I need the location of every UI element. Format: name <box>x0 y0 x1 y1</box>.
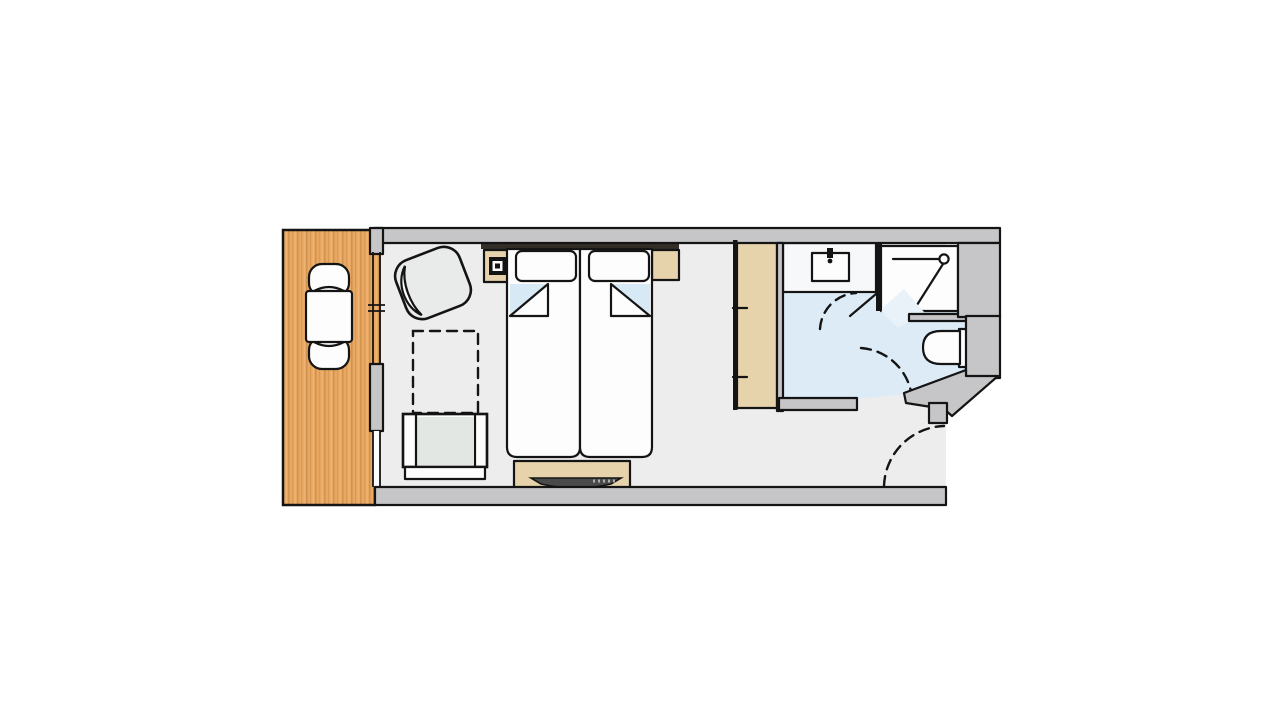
vanity-counter <box>783 243 876 292</box>
wardrobe <box>733 241 777 408</box>
floor-plan-drawing <box>0 0 1280 720</box>
lounge-chair-seat <box>417 417 473 465</box>
wall-left-pier <box>370 364 383 431</box>
lounge-chair-base <box>405 467 485 479</box>
wall-right-mid <box>966 316 1000 378</box>
lounge-chair <box>403 414 487 479</box>
room-balcony <box>283 230 381 505</box>
wall-left-stub <box>370 228 383 254</box>
pillow-right <box>589 251 649 281</box>
wall-bottom <box>375 487 946 505</box>
wall-bathroom-bottom <box>779 398 857 410</box>
wall-top <box>375 228 1000 243</box>
wall-bedroom-niche <box>733 240 738 410</box>
floor-plan-page <box>0 0 1280 720</box>
wall-right-upper <box>958 243 1000 317</box>
faucet-icon <box>827 248 833 258</box>
toilet-bowl <box>923 331 960 364</box>
balcony-table <box>306 291 352 342</box>
balcony-door <box>373 431 380 487</box>
wall-vanity-shower <box>876 243 882 311</box>
wall-wardrobe-bathroom <box>777 243 783 411</box>
pillow-left <box>516 251 576 281</box>
shower-head-icon <box>939 254 948 263</box>
entry-door-jamb <box>929 403 947 423</box>
nightstand-right <box>652 250 679 280</box>
toilet <box>923 329 969 367</box>
